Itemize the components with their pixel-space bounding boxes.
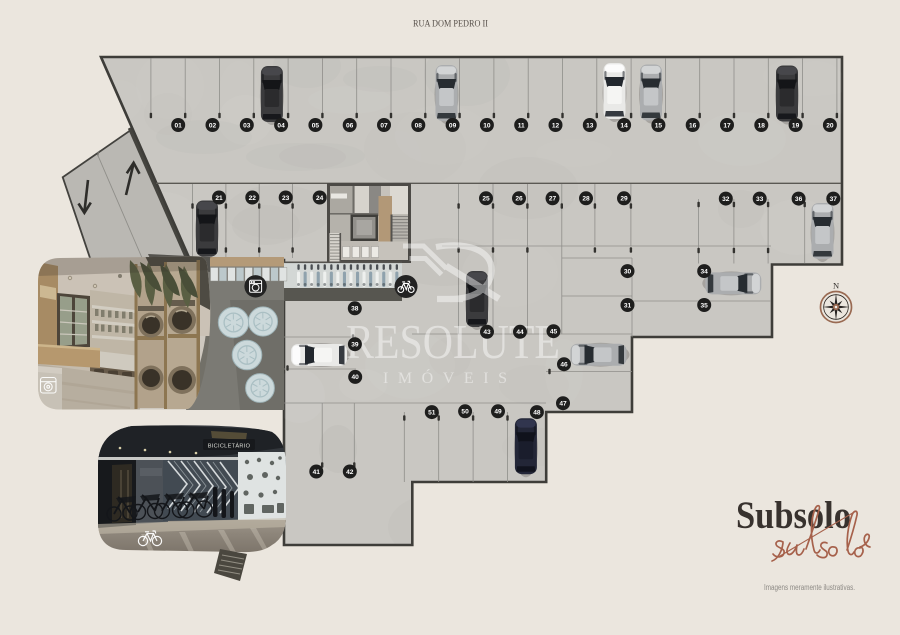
svg-text:20: 20 [826, 122, 834, 129]
svg-text:Imagens meramente ilustrativas: Imagens meramente ilustrativas. [764, 583, 855, 592]
svg-text:IMÓVEIS: IMÓVEIS [383, 368, 517, 387]
svg-text:16: 16 [689, 122, 697, 129]
svg-text:45: 45 [550, 329, 558, 336]
svg-text:39: 39 [351, 342, 359, 349]
svg-text:17: 17 [723, 122, 731, 129]
svg-text:05: 05 [312, 122, 320, 129]
svg-text:04: 04 [277, 122, 285, 129]
svg-text:09: 09 [449, 122, 457, 129]
svg-text:33: 33 [756, 196, 764, 203]
svg-text:02: 02 [209, 122, 217, 129]
svg-text:22: 22 [249, 195, 257, 202]
svg-text:24: 24 [316, 195, 324, 202]
svg-text:29: 29 [620, 196, 628, 203]
svg-text:BICICLETÁRIO: BICICLETÁRIO [208, 443, 251, 450]
svg-text:30: 30 [624, 268, 632, 275]
svg-text:44: 44 [516, 329, 524, 336]
svg-text:08: 08 [415, 122, 423, 129]
svg-text:51: 51 [428, 409, 436, 416]
svg-text:27: 27 [549, 196, 557, 203]
svg-text:12: 12 [552, 122, 560, 129]
svg-text:07: 07 [380, 122, 388, 129]
svg-text:RUA DOM PEDRO II: RUA DOM PEDRO II [413, 19, 488, 30]
svg-text:11: 11 [518, 122, 525, 129]
svg-text:50: 50 [461, 409, 469, 416]
svg-text:03: 03 [243, 122, 251, 129]
svg-text:48: 48 [533, 409, 541, 416]
svg-text:06: 06 [346, 122, 354, 129]
svg-text:31: 31 [624, 302, 632, 309]
svg-text:38: 38 [351, 306, 359, 313]
svg-text:01: 01 [175, 122, 183, 129]
svg-text:14: 14 [620, 122, 628, 129]
svg-text:37: 37 [830, 196, 838, 203]
svg-text:RESOLUTE: RESOLUTE [346, 314, 560, 369]
svg-text:49: 49 [494, 409, 502, 416]
svg-text:42: 42 [346, 469, 354, 476]
svg-text:13: 13 [586, 122, 594, 129]
svg-text:36: 36 [795, 196, 803, 203]
svg-text:10: 10 [483, 122, 491, 129]
svg-text:41: 41 [313, 469, 321, 476]
svg-text:28: 28 [582, 196, 590, 203]
svg-text:25: 25 [482, 196, 490, 203]
svg-text:46: 46 [560, 362, 568, 369]
svg-text:N: N [833, 281, 839, 291]
svg-text:32: 32 [722, 196, 730, 203]
svg-text:43: 43 [483, 329, 491, 336]
svg-text:Subsolo: Subsolo [736, 494, 851, 537]
svg-text:21: 21 [215, 195, 223, 202]
svg-text:35: 35 [701, 302, 709, 309]
svg-text:23: 23 [282, 195, 290, 202]
svg-text:19: 19 [792, 122, 800, 129]
svg-text:47: 47 [559, 401, 567, 408]
svg-text:40: 40 [352, 374, 360, 381]
svg-text:18: 18 [758, 122, 766, 129]
svg-text:34: 34 [701, 268, 709, 275]
svg-text:15: 15 [655, 122, 663, 129]
svg-text:26: 26 [515, 196, 523, 203]
